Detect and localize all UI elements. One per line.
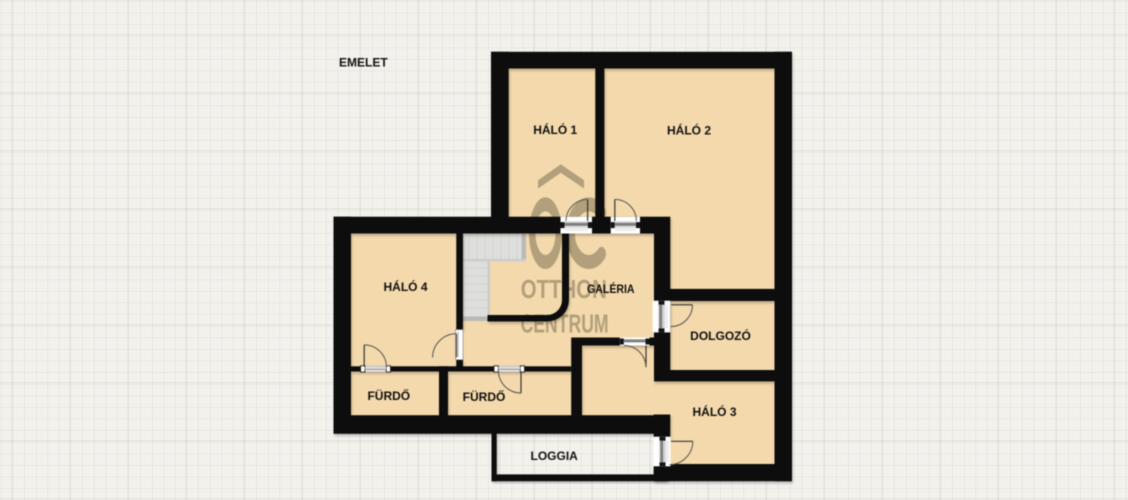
svg-text:GALÉRIA: GALÉRIA [587, 281, 635, 296]
svg-text:HÁLÓ 3: HÁLÓ 3 [692, 404, 736, 419]
svg-text:HÁLÓ 4: HÁLÓ 4 [383, 279, 427, 294]
svg-text:FÜRDŐ: FÜRDŐ [463, 389, 506, 404]
svg-text:HÁLÓ 1: HÁLÓ 1 [533, 122, 577, 137]
svg-text:CENTRUM: CENTRUM [521, 310, 609, 338]
svg-text:DOLGOZÓ: DOLGOZÓ [690, 328, 751, 343]
svg-text:FÜRDŐ: FÜRDŐ [367, 388, 410, 403]
svg-text:HÁLÓ 2: HÁLÓ 2 [667, 122, 711, 137]
svg-text:EMELET: EMELET [339, 56, 388, 70]
svg-text:LOGGIA: LOGGIA [531, 449, 579, 463]
